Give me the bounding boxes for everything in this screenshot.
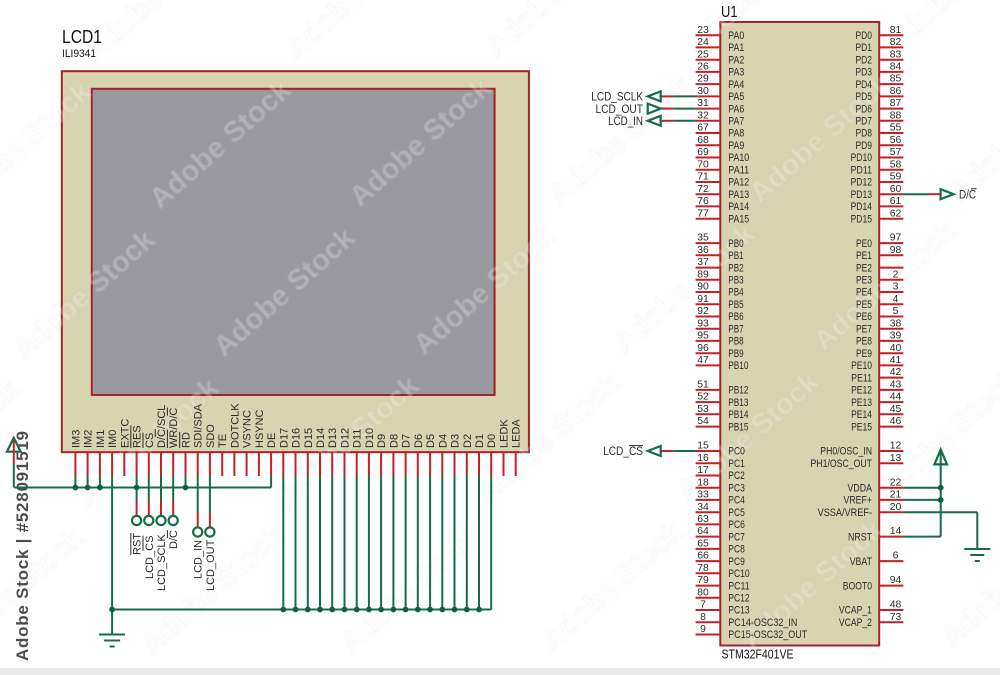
svg-text:Adobe Stock | #528091519: Adobe Stock | #528091519 [13,431,32,661]
svg-text:PA11: PA11 [728,164,749,176]
svg-text:PA6: PA6 [728,103,744,115]
svg-text:PC5: PC5 [728,507,745,519]
svg-text:PD4: PD4 [856,79,873,91]
svg-text:PC10: PC10 [728,568,749,580]
svg-text:PE1: PE1 [856,250,872,262]
svg-text:LCD_IN: LCD_IN [608,116,643,128]
svg-text:20: 20 [890,502,902,513]
svg-text:LCD_CS: LCD_CS [144,536,156,579]
svg-text:D8: D8 [388,434,400,448]
svg-text:PC9: PC9 [728,556,745,568]
svg-text:ILI9341: ILI9341 [62,48,96,60]
svg-text:D13: D13 [327,428,339,448]
svg-text:39: 39 [890,331,902,342]
svg-text:40: 40 [890,343,902,354]
svg-text:D4: D4 [437,434,449,448]
svg-text:PA13: PA13 [728,189,749,201]
svg-text:D/C: D/C [959,189,976,201]
svg-text:PD13: PD13 [851,189,872,201]
svg-text:PA5: PA5 [728,91,744,103]
svg-text:41: 41 [890,355,902,366]
svg-text:80: 80 [697,587,709,598]
svg-text:95: 95 [697,331,709,342]
svg-text:SDI/SDA: SDI/SDA [193,403,205,448]
svg-text:84: 84 [890,62,902,73]
svg-text:88: 88 [890,110,902,121]
svg-text:PA7: PA7 [728,116,744,128]
svg-text:PC12: PC12 [728,593,749,605]
svg-text:PC8: PC8 [728,544,745,556]
svg-text:D9: D9 [376,434,388,448]
svg-text:51: 51 [697,380,709,391]
svg-text:HSYNC: HSYNC [254,409,266,448]
svg-text:LCD_SCLK: LCD_SCLK [591,92,643,104]
svg-text:U1: U1 [721,4,738,21]
svg-text:29: 29 [697,74,709,85]
svg-text:PE15: PE15 [851,421,872,433]
svg-text:PE11: PE11 [851,372,872,384]
svg-text:85: 85 [890,74,902,85]
svg-text:D12: D12 [340,428,352,448]
svg-text:30: 30 [697,86,709,97]
svg-text:64: 64 [697,526,709,537]
svg-text:IM1: IM1 [95,430,107,448]
svg-text:D/C: D/C [168,530,180,549]
svg-text:42: 42 [890,367,902,378]
svg-text:CS: CS [144,433,156,448]
svg-text:PE10: PE10 [851,360,872,372]
svg-text:TE: TE [217,434,229,448]
svg-text:PB14: PB14 [728,409,748,421]
svg-text:PC13: PC13 [728,605,749,617]
svg-text:32: 32 [697,110,709,121]
svg-text:57: 57 [890,147,902,158]
svg-text:73: 73 [890,612,902,623]
svg-text:PD14: PD14 [851,201,872,213]
svg-text:55: 55 [890,123,902,134]
svg-text:77: 77 [697,208,709,219]
svg-text:59: 59 [890,172,902,183]
svg-text:70: 70 [697,159,709,170]
svg-text:86: 86 [890,86,902,97]
svg-text:PD7: PD7 [856,116,873,128]
svg-text:54: 54 [697,416,709,427]
svg-text:PA12: PA12 [728,177,749,189]
svg-text:PB10: PB10 [728,360,748,372]
svg-text:RES: RES [132,425,144,448]
svg-text:D1: D1 [474,434,486,448]
svg-text:PA3: PA3 [728,67,744,79]
svg-text:NRST: NRST [848,531,872,543]
svg-text:13: 13 [890,453,902,464]
svg-text:LEDA: LEDA [511,419,523,448]
svg-text:D2: D2 [462,434,474,448]
svg-text:66: 66 [697,551,709,562]
svg-text:D15: D15 [303,428,315,448]
svg-text:PB6: PB6 [728,311,743,323]
svg-text:33: 33 [697,490,709,501]
svg-text:D11: D11 [352,429,364,448]
svg-text:D3: D3 [450,434,462,448]
svg-text:PD2: PD2 [856,54,873,66]
svg-text:PH0/OSC_IN: PH0/OSC_IN [820,446,872,458]
svg-text:17: 17 [697,465,709,476]
svg-text:PE14: PE14 [851,409,872,421]
svg-text:PD5: PD5 [856,91,873,103]
svg-text:PD15: PD15 [851,213,872,225]
svg-text:LCD1: LCD1 [62,27,102,47]
svg-text:34: 34 [697,502,709,513]
svg-text:PE8: PE8 [856,336,872,348]
svg-text:43: 43 [890,380,902,391]
svg-text:PC7: PC7 [728,531,745,543]
svg-text:D7: D7 [401,434,413,448]
svg-text:12: 12 [890,441,902,452]
svg-text:83: 83 [890,49,902,60]
svg-text:45: 45 [890,404,902,415]
svg-text:21: 21 [890,490,902,501]
svg-text:LCD_CS: LCD_CS [603,446,643,458]
svg-text:D0: D0 [486,434,498,448]
svg-text:PB13: PB13 [728,397,748,409]
svg-text:PA2: PA2 [728,54,744,66]
svg-text:38: 38 [890,318,902,329]
svg-text:VBAT: VBAT [850,556,873,568]
svg-text:PC14-OSC32_IN: PC14-OSC32_IN [728,617,797,629]
svg-text:90: 90 [697,282,709,293]
svg-text:PC0: PC0 [728,446,745,458]
svg-text:D/C/SCL: D/C/SCL [156,405,168,448]
svg-text:79: 79 [697,575,709,586]
svg-text:71: 71 [697,172,709,183]
svg-text:89: 89 [697,269,709,280]
svg-text:PB0: PB0 [728,238,743,250]
svg-text:PC4: PC4 [728,495,745,507]
svg-text:35: 35 [697,233,709,244]
svg-text:PE12: PE12 [851,385,872,397]
svg-text:44: 44 [890,392,902,403]
svg-text:PC6: PC6 [728,519,745,531]
svg-text:PE0: PE0 [856,238,872,250]
svg-text:3: 3 [893,282,899,293]
svg-text:7: 7 [700,600,706,611]
svg-text:26: 26 [697,62,709,73]
svg-text:PB1: PB1 [728,250,743,262]
svg-text:PD9: PD9 [856,140,873,152]
svg-text:PB3: PB3 [728,275,743,287]
svg-text:PE7: PE7 [856,323,872,335]
svg-text:IM2: IM2 [83,430,95,448]
svg-text:PC11: PC11 [728,580,749,592]
svg-text:98: 98 [890,245,902,256]
svg-text:15: 15 [697,441,709,452]
svg-text:RST: RST [132,533,144,555]
svg-text:LCD_OUT: LCD_OUT [205,539,217,591]
svg-text:97: 97 [890,233,902,244]
svg-text:BOOT0: BOOT0 [843,580,872,592]
svg-text:94: 94 [890,575,902,586]
svg-text:D6: D6 [413,434,425,448]
svg-text:IM3: IM3 [70,430,82,448]
svg-text:PD11: PD11 [851,164,872,176]
svg-text:PA10: PA10 [728,152,749,164]
svg-text:PA1: PA1 [728,42,744,54]
svg-text:PB9: PB9 [728,348,743,360]
svg-text:9: 9 [700,624,706,635]
svg-text:VREF+: VREF+ [844,495,873,507]
svg-text:PD8: PD8 [856,128,873,140]
svg-text:68: 68 [697,135,709,146]
svg-text:93: 93 [697,318,709,329]
svg-text:DOTCLK: DOTCLK [229,403,241,448]
svg-text:PA0: PA0 [728,30,744,42]
svg-text:VSSA/VREF-: VSSA/VREF- [818,507,873,519]
svg-text:PA4: PA4 [728,79,744,91]
svg-text:IM0: IM0 [107,430,119,448]
svg-text:LEDK: LEDK [499,419,511,448]
svg-text:81: 81 [890,25,902,36]
svg-text:PB7: PB7 [728,323,743,335]
svg-text:PD6: PD6 [856,103,873,115]
svg-text:PE13: PE13 [851,397,872,409]
svg-text:D16: D16 [291,428,303,448]
svg-text:76: 76 [697,196,709,207]
svg-text:46: 46 [890,416,902,427]
svg-text:5: 5 [893,306,899,317]
svg-text:SDO: SDO [205,424,217,448]
svg-text:PC15-OSC32_OUT: PC15-OSC32_OUT [728,629,807,641]
svg-text:PE4: PE4 [856,287,872,299]
svg-text:91: 91 [697,294,709,305]
svg-text:6: 6 [893,551,899,562]
svg-text:PD1: PD1 [856,42,873,54]
svg-text:31: 31 [697,98,709,109]
svg-text:65: 65 [697,539,709,550]
svg-text:PC1: PC1 [728,458,745,470]
svg-text:72: 72 [697,184,709,195]
svg-text:25: 25 [697,49,709,60]
svg-text:52: 52 [697,392,709,403]
svg-text:92: 92 [697,306,709,317]
svg-text:VDDA: VDDA [848,482,873,494]
svg-text:PB5: PB5 [728,299,743,311]
svg-text:67: 67 [697,123,709,134]
svg-text:PA15: PA15 [728,213,749,225]
svg-text:RD: RD [181,432,193,448]
svg-text:PA9: PA9 [728,140,744,152]
svg-text:37: 37 [697,257,709,268]
svg-text:D17: D17 [278,428,290,448]
svg-text:DE: DE [266,433,278,448]
svg-text:VCAP_2: VCAP_2 [839,617,872,629]
svg-text:LCD_SCLK: LCD_SCLK [156,533,168,591]
svg-text:PB8: PB8 [728,336,743,348]
svg-text:PC2: PC2 [728,470,745,482]
svg-text:62: 62 [890,208,902,219]
svg-text:16: 16 [697,453,709,464]
svg-text:VSYNC: VSYNC [242,410,254,448]
svg-text:PA8: PA8 [728,128,744,140]
svg-text:8: 8 [700,612,706,623]
svg-text:PE3: PE3 [856,275,872,287]
svg-text:82: 82 [890,37,902,48]
svg-text:VCAP_1: VCAP_1 [839,605,872,617]
svg-text:53: 53 [697,404,709,415]
svg-text:22: 22 [890,477,902,488]
svg-text:PE5: PE5 [856,299,872,311]
svg-text:63: 63 [697,514,709,525]
svg-text:PB12: PB12 [728,385,748,397]
svg-text:96: 96 [697,343,709,354]
svg-text:PB15: PB15 [728,421,748,433]
svg-text:PD10: PD10 [851,152,872,164]
svg-text:STM32F401VE: STM32F401VE [722,648,794,662]
svg-text:18: 18 [697,477,709,488]
svg-text:14: 14 [890,526,902,537]
svg-text:EXTC: EXTC [119,419,131,448]
svg-text:60: 60 [890,184,902,195]
svg-text:24: 24 [697,37,709,48]
svg-text:87: 87 [890,98,902,109]
svg-text:D14: D14 [315,428,327,448]
svg-text:LCD_IN: LCD_IN [193,540,205,579]
svg-text:PH1/OSC_OUT: PH1/OSC_OUT [811,458,873,470]
svg-text:PE9: PE9 [856,348,872,360]
svg-text:PE2: PE2 [856,262,872,274]
svg-text:56: 56 [890,135,902,146]
svg-text:61: 61 [890,196,902,207]
svg-text:PB2: PB2 [728,262,743,274]
svg-text:PA14: PA14 [728,201,749,213]
svg-text:69: 69 [697,147,709,158]
svg-text:D5: D5 [425,434,437,448]
svg-text:36: 36 [697,245,709,256]
svg-text:PD3: PD3 [856,67,873,79]
svg-text:48: 48 [890,600,902,611]
svg-text:78: 78 [697,563,709,574]
svg-text:WR/D/C: WR/D/C [168,408,180,448]
svg-text:PE6: PE6 [856,311,872,323]
svg-text:58: 58 [890,159,902,170]
svg-text:PD0: PD0 [856,30,873,42]
svg-text:LCD_OUT: LCD_OUT [596,104,644,116]
svg-text:4: 4 [893,294,899,305]
svg-text:PB4: PB4 [728,287,743,299]
svg-text:D10: D10 [364,428,376,448]
svg-text:2: 2 [893,269,899,280]
svg-text:47: 47 [697,355,709,366]
svg-text:PC3: PC3 [728,482,745,494]
svg-text:23: 23 [697,25,709,36]
svg-text:PD12: PD12 [851,177,872,189]
